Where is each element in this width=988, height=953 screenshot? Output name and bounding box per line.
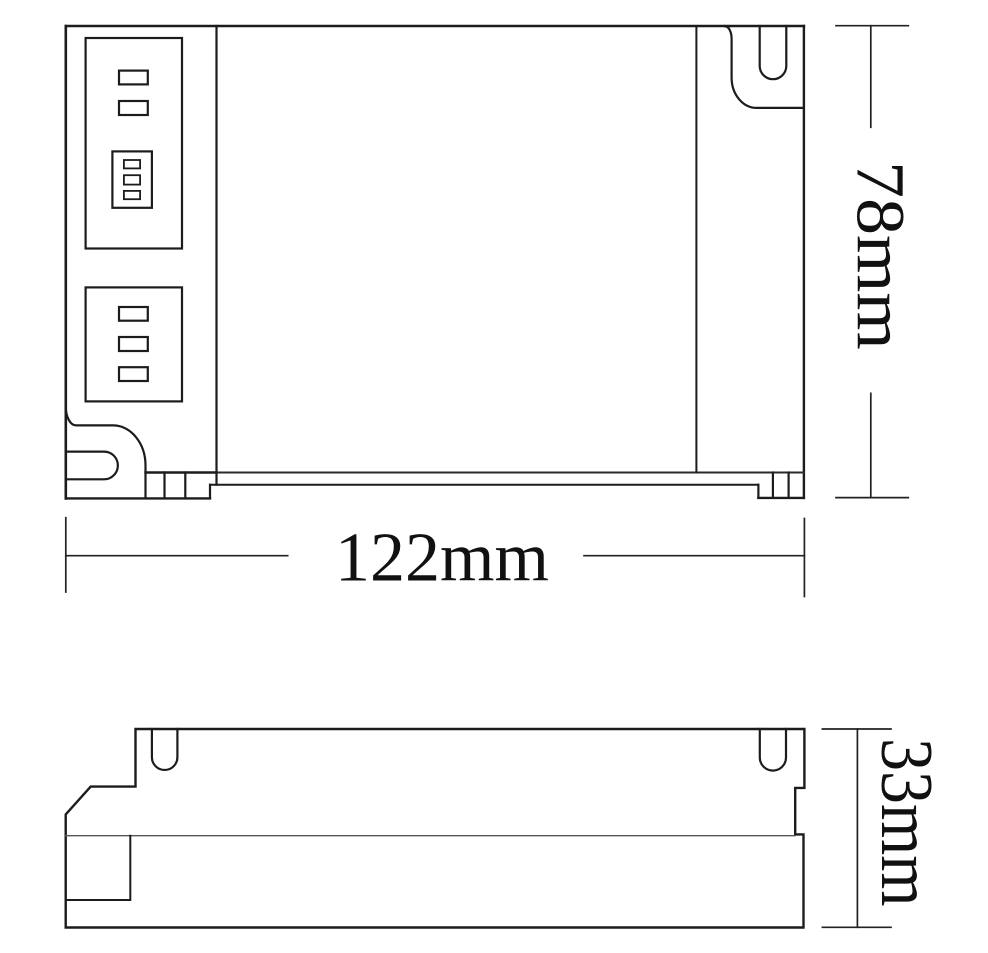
- svg-text:122mm: 122mm: [335, 520, 549, 597]
- svg-text:78mm: 78mm: [842, 161, 918, 350]
- svg-text:33mm: 33mm: [865, 738, 947, 906]
